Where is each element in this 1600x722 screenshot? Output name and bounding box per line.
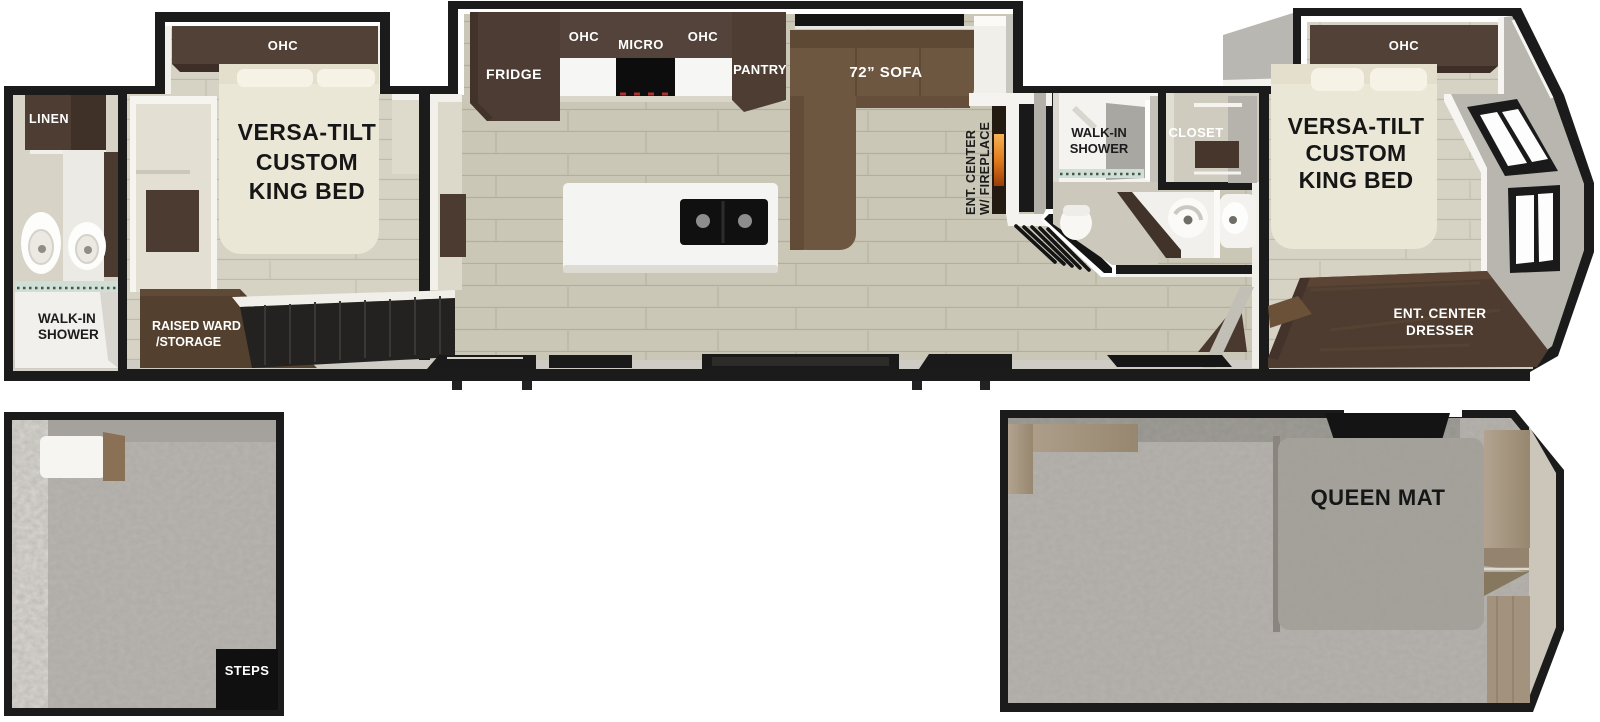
svg-text:VERSA-TILT: VERSA-TILT <box>238 119 377 145</box>
svg-text:SHOWER: SHOWER <box>38 327 99 342</box>
svg-text:KING BED: KING BED <box>249 178 365 204</box>
svg-text:/STORAGE: /STORAGE <box>156 335 221 349</box>
svg-text:WALK-IN: WALK-IN <box>1071 125 1127 140</box>
svg-text:ENT. CENTER: ENT. CENTER <box>964 130 978 215</box>
svg-text:WALK-IN: WALK-IN <box>38 311 96 326</box>
svg-text:CLOSET: CLOSET <box>1168 125 1223 140</box>
svg-text:W/ FIREPLACE: W/ FIREPLACE <box>978 122 992 215</box>
svg-text:QUEEN MAT: QUEEN MAT <box>1311 485 1446 510</box>
svg-text:DRESSER: DRESSER <box>1406 323 1474 338</box>
svg-text:SHOWER: SHOWER <box>1070 141 1129 156</box>
svg-text:FRIDGE: FRIDGE <box>486 66 542 82</box>
svg-text:MICRO: MICRO <box>618 37 664 52</box>
svg-text:KING BED: KING BED <box>1299 167 1414 193</box>
svg-text:OHC: OHC <box>1389 38 1420 53</box>
svg-text:OHC: OHC <box>688 29 719 44</box>
svg-text:VERSA-TILT: VERSA-TILT <box>1288 113 1425 139</box>
svg-text:72” SOFA: 72” SOFA <box>849 64 922 81</box>
svg-text:LINEN: LINEN <box>29 112 69 126</box>
svg-text:OHC: OHC <box>268 38 299 53</box>
svg-text:RAISED WARD: RAISED WARD <box>152 319 241 333</box>
svg-text:CUSTOM: CUSTOM <box>256 149 358 175</box>
svg-text:STEPS: STEPS <box>225 663 270 678</box>
svg-text:ENT. CENTER: ENT. CENTER <box>1394 306 1487 321</box>
svg-text:PANTRY: PANTRY <box>733 62 787 77</box>
svg-text:OHC: OHC <box>569 29 600 44</box>
svg-text:CUSTOM: CUSTOM <box>1305 140 1406 166</box>
